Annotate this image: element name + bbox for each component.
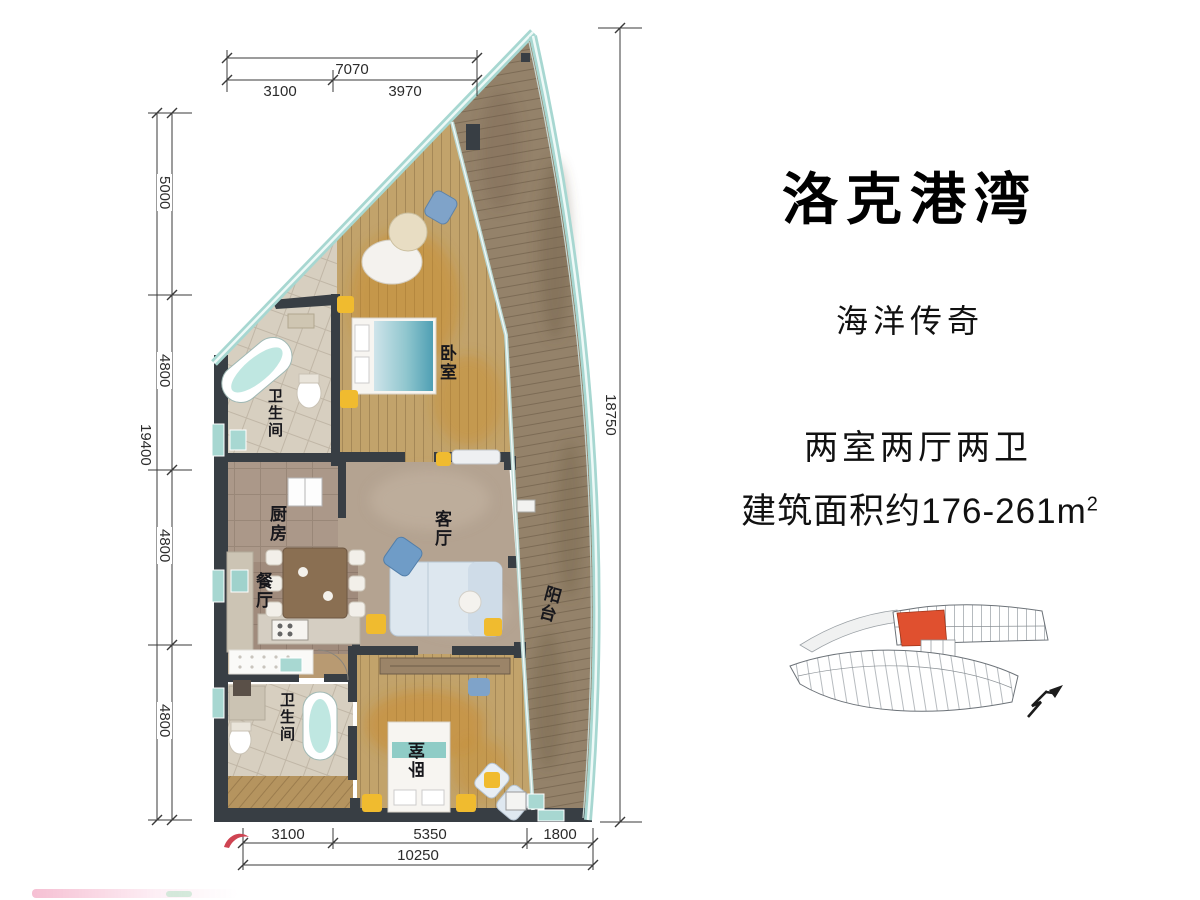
area-prefix: 建筑面积约176-261m — [741, 492, 1087, 531]
north-arrow-icon — [1028, 685, 1063, 717]
dim-top-seg-1: 3100 — [230, 84, 330, 99]
label-dining: 餐厅 — [254, 572, 271, 610]
area-text: 建筑面积约176-261m2 — [700, 483, 1140, 534]
balcony-sink — [528, 794, 544, 809]
dim-top-total: 7070 — [302, 62, 402, 77]
dim-top-seg-2: 3970 — [355, 84, 455, 99]
watermark-dot — [166, 891, 192, 897]
rug-round — [389, 213, 427, 251]
bench-white — [452, 450, 500, 464]
cushion-blue — [468, 678, 490, 696]
dim-left-total: 19400 — [138, 422, 153, 468]
side-table — [459, 591, 481, 613]
label-kitchen: 厨房 — [268, 505, 285, 543]
sink-top — [230, 430, 246, 450]
label-bathroom-top: 卫生间 — [267, 388, 282, 439]
dim-bottom-seg-1: 3100 — [238, 827, 338, 842]
label-bathroom-bottom: 卫生间 — [279, 692, 294, 743]
floorplan-page: 洛克港湾 海洋传奇 两室两厅两卫 建筑面积约176-261m2 卧室 卫生间 厨… — [0, 0, 1200, 900]
dim-left-seg-1: 5000 — [157, 174, 172, 211]
stove — [272, 620, 308, 640]
kitchen-counter-left — [227, 552, 253, 652]
pillow — [355, 357, 369, 383]
dining-table — [283, 548, 347, 618]
layout-type: 两室两厅两卫 — [748, 420, 1088, 469]
area-superscript: 2 — [1087, 493, 1099, 515]
dim-bottom-seg-3: 1800 — [510, 827, 610, 842]
dim-right-total: 18750 — [603, 392, 618, 438]
watermark-bar — [32, 889, 237, 898]
balcony-planter — [517, 500, 535, 512]
project-title: 洛克港湾 — [740, 155, 1080, 236]
sink-bottom — [280, 658, 302, 672]
dim-left-seg-4: 4800 — [157, 702, 172, 739]
dim-bottom-total: 10250 — [368, 848, 468, 863]
label-bedroom-bottom: 卧室 — [410, 740, 427, 778]
balcony-cabinet — [506, 792, 526, 810]
project-subtitle: 海洋传奇 — [740, 296, 1080, 342]
pillow — [355, 325, 369, 351]
vanity-counter — [288, 314, 314, 328]
label-bedroom-top: 卧室 — [438, 344, 455, 382]
dim-left-seg-2: 4800 — [157, 352, 172, 389]
keyplan-upper-wing-tail — [800, 610, 899, 652]
dark-vanity — [233, 680, 251, 696]
toilet-tank — [299, 374, 319, 383]
dim-left-seg-3: 4800 — [157, 527, 172, 564]
keyplan — [790, 605, 1063, 717]
dim-bottom-seg-2: 5350 — [380, 827, 480, 842]
bathtub-water-2 — [309, 699, 331, 753]
bed-top-cover — [374, 321, 433, 391]
keyplan-lower-wing — [790, 650, 1018, 711]
label-living: 客厅 — [433, 510, 450, 548]
kitchen-sink — [231, 570, 248, 592]
